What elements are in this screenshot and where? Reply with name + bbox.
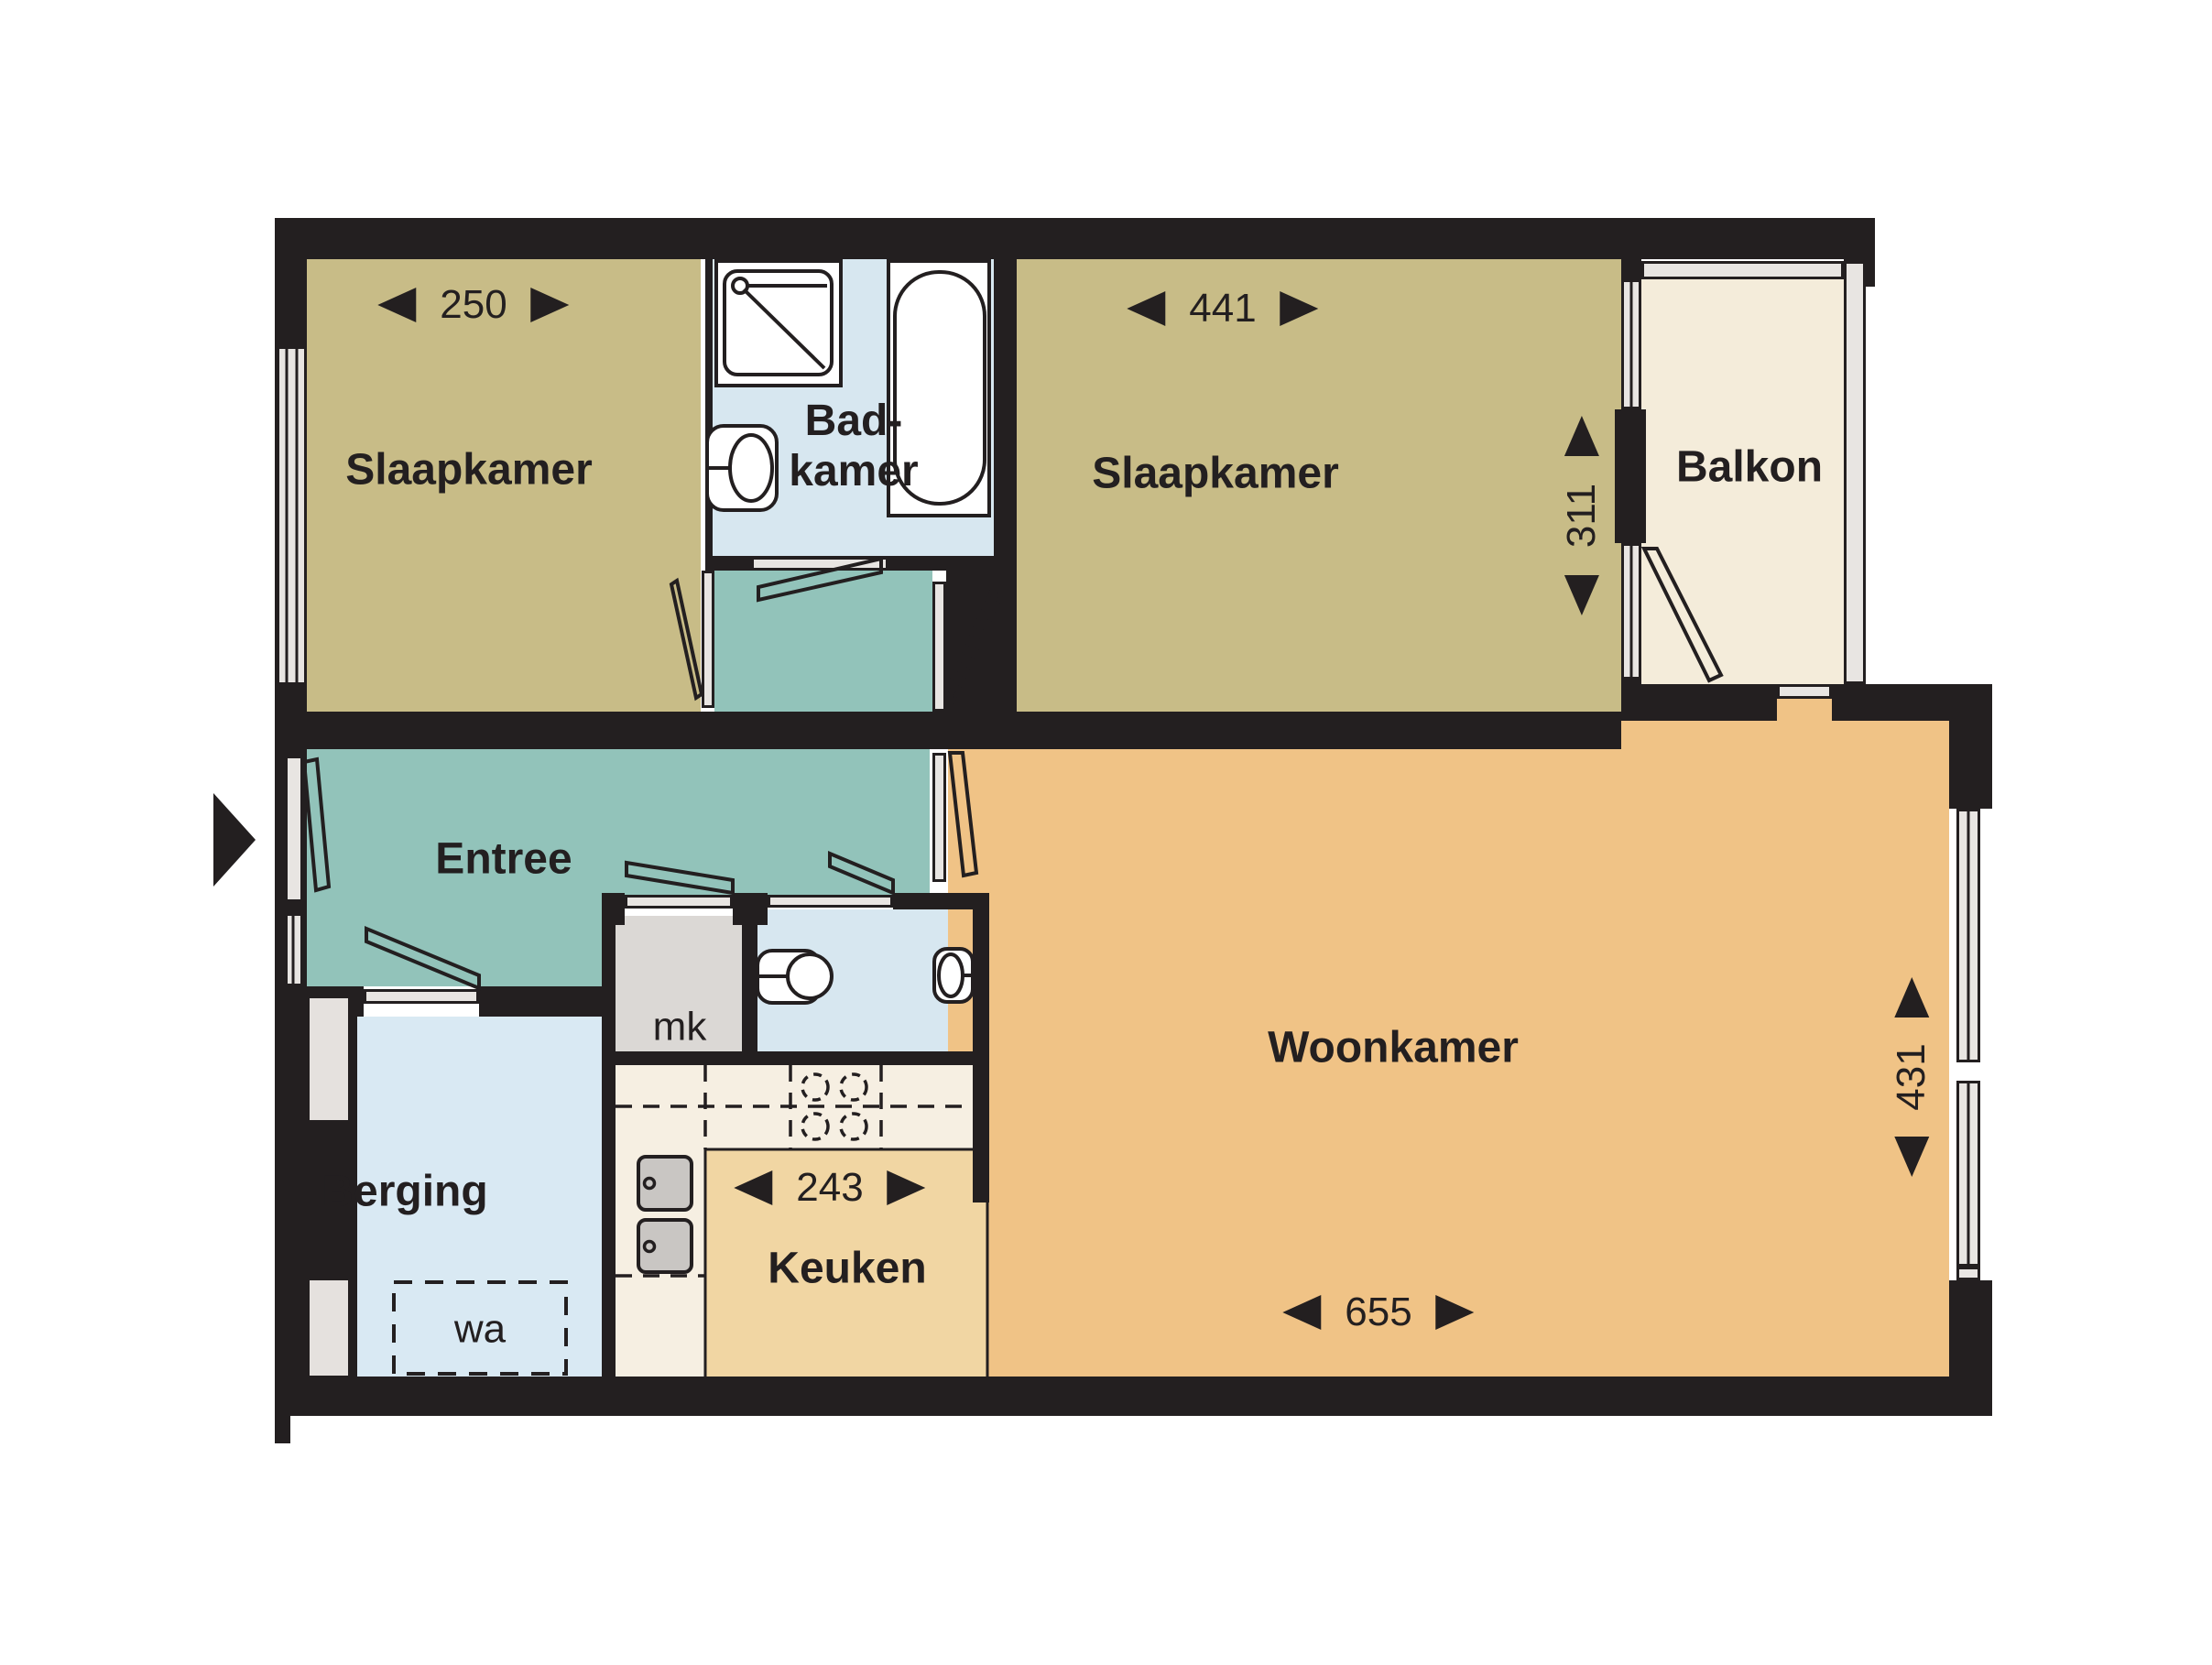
window-living-lower [1956, 1081, 1980, 1267]
arrow-right-icon [1436, 1295, 1475, 1330]
floorplan: Slaapkamer Bad- kamer Slaapkamer Balkon … [0, 0, 2212, 1665]
dim-value: 431 [1889, 1043, 1934, 1110]
room-living-floor-strip [1621, 721, 1949, 749]
window-bedroom-left [277, 346, 307, 685]
dim-bedroom-left-width: 250 [377, 282, 569, 328]
wall-storage-top-b [479, 986, 616, 1017]
room-label-bathroom: Bad- kamer [789, 396, 918, 496]
arrow-right-icon [1280, 291, 1319, 326]
dim-value: 243 [796, 1165, 863, 1211]
wall-bedroom2-window-bottom [1621, 680, 1641, 712]
arrow-left-icon [734, 1170, 772, 1205]
arrow-up-icon [1564, 416, 1599, 456]
inner-hall-floor [714, 571, 932, 712]
dim-kitchen-width: 243 [734, 1165, 925, 1211]
dim-living-depth: 431 [1878, 977, 1945, 1177]
room-label-balcony: Balkon [1676, 441, 1823, 492]
meter-closet-door-slab [625, 895, 733, 909]
meter-closet-label: mk [653, 1005, 707, 1051]
storage-door-slab [364, 989, 479, 1004]
room-label-entree: Entree [435, 833, 572, 884]
dim-bedroom-right-depth: 311 [1550, 416, 1614, 615]
toilet-door-slab [768, 895, 893, 908]
front-door-slab [285, 756, 303, 902]
room-entree-floor-ext [300, 895, 602, 986]
room-toilet-floor [757, 909, 973, 1051]
wall-toilet-left [742, 909, 757, 1065]
arrow-left-icon [377, 288, 416, 322]
bathroom-label-line2: kamer [789, 447, 918, 495]
room-label-bedroom-left: Slaapkamer [345, 444, 593, 495]
storage-wall-niche-upper [310, 998, 348, 1120]
bathroom-door-slab [751, 557, 888, 571]
bathroom-label-line1: Bad- [805, 397, 903, 445]
wall-right-upper [1949, 684, 1992, 809]
balcony-railing-top [1641, 261, 1844, 279]
window-living-upper [1956, 809, 1980, 1062]
balcony-door [1621, 543, 1641, 680]
wall-bathroom-right [994, 218, 1017, 712]
wall-hall-right [946, 556, 994, 712]
dim-living-width: 655 [1282, 1290, 1474, 1335]
wall-storage-right [602, 1017, 616, 1377]
dim-bedroom-right-width: 441 [1127, 286, 1318, 332]
bedroom-left-door-slab [702, 571, 714, 708]
wall-toilet-right [973, 893, 989, 1202]
arrow-left-icon [1127, 291, 1165, 326]
arrow-down-icon [1564, 575, 1599, 615]
dim-value: 441 [1189, 286, 1256, 332]
window-living-sill [1956, 1267, 1980, 1280]
window-bedroom-right [1621, 279, 1641, 409]
wall-bathroom-left [705, 259, 713, 571]
window-entree-left [285, 913, 303, 986]
living-door-slab [932, 753, 946, 882]
dim-value: 311 [1559, 484, 1605, 548]
room-label-kitchen: Keuken [768, 1243, 926, 1293]
wall-balcony-bottom-left [1621, 684, 1777, 721]
storage-wall-niche-lower [310, 1280, 348, 1376]
wall-outer-top [275, 218, 1875, 259]
wall-bedroom2-window-top [1621, 259, 1641, 279]
room-label-storage: Berging [321, 1166, 487, 1216]
washer-label: wa [454, 1307, 506, 1354]
kitchen-counter-column [616, 1149, 705, 1377]
arrow-down-icon [1894, 1137, 1929, 1177]
kitchen-counter-row [616, 1065, 973, 1149]
room-label-bedroom-right: Slaapkamer [1092, 448, 1339, 498]
entry-arrow-icon [213, 793, 256, 887]
arrow-right-icon [531, 288, 570, 322]
room-label-living: Woonkamer [1268, 1022, 1519, 1072]
balcony-living-slab [1777, 684, 1832, 699]
bedroom-right-door-slab [932, 582, 946, 712]
arrow-right-icon [888, 1170, 926, 1205]
dim-value: 250 [440, 282, 507, 328]
arrow-left-icon [1282, 1295, 1321, 1330]
balcony-railing-right [1844, 261, 1866, 684]
wall-central [275, 712, 1621, 749]
room-living-floor-gap [1777, 699, 1832, 721]
wall-right-lower [1949, 1280, 1992, 1377]
wall-kitchen-top [602, 1051, 989, 1065]
wall-bedroom2-window-divider [1615, 409, 1646, 543]
wall-entree-bottom-a [602, 893, 625, 925]
room-entree-floor [300, 749, 930, 895]
dim-value: 655 [1345, 1290, 1411, 1335]
wall-outer-left-foot [275, 1416, 290, 1443]
arrow-up-icon [1894, 977, 1929, 1017]
wall-outer-bottom [275, 1377, 1992, 1416]
